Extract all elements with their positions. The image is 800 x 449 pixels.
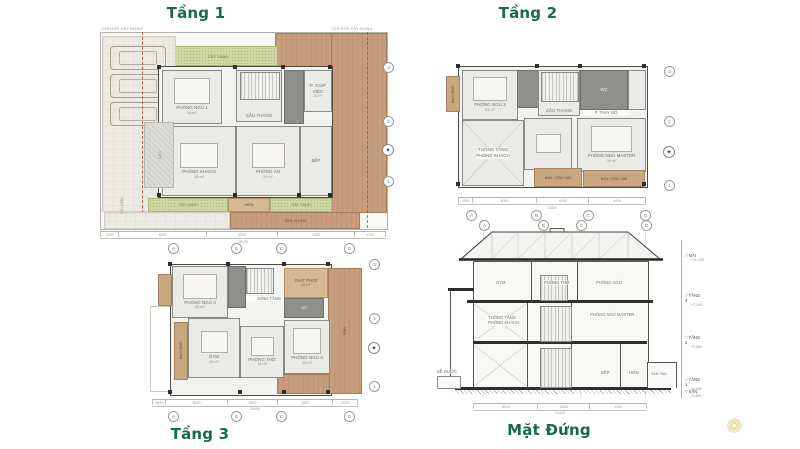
room-dining: PHÒNG ĂN 24 m² [236, 126, 300, 196]
garden-deck: SÂN VƯỜN [230, 212, 360, 229]
dimension-row: 5000 4000 4400 [473, 403, 647, 409]
terrace-right: SÂN [328, 268, 362, 394]
column [535, 64, 539, 68]
room-bath2 [517, 70, 539, 108]
grid-bubble-1: 1 [383, 176, 394, 187]
grid-bubble-2: 2 [369, 313, 380, 324]
grid-bubble-a: A [466, 210, 477, 221]
level-marker: TẦNG 3 +7.200 [685, 293, 702, 308]
room-sitting [524, 118, 572, 170]
level-marker: SÂN -0.450 [685, 389, 701, 399]
room-master: PHÒNG NGỦ MASTER 36 m² [577, 118, 646, 172]
void-cross [474, 345, 526, 386]
wall-line [527, 344, 528, 388]
section-porch-label: HIÊN [628, 370, 640, 375]
floor1-title: Tầng 1 [130, 4, 262, 22]
room-laundry: GIẶT PHƠI 12 m² [284, 268, 328, 298]
north-arrow-icon: ✦ [382, 144, 394, 156]
grid-bubble-3: 3 [664, 66, 675, 77]
grid-bubble-c: C [276, 411, 287, 422]
wall-line [577, 261, 578, 301]
roof-section [458, 228, 664, 262]
brand-flower-logo: ❁ [726, 417, 743, 437]
level-marker: TẦNG 2 +3.600 [685, 335, 702, 350]
column [642, 64, 646, 68]
dimension-row: 1000 5000 4000 4400 1700 [100, 231, 386, 237]
column [328, 65, 332, 69]
grid-bubble-c: C [583, 210, 594, 221]
planting-strip-br: CÂY XANH [270, 198, 332, 212]
water-tank-label: BỂ NƯỚC [436, 369, 458, 374]
court-area: SÂN [144, 122, 174, 188]
dimension-row: 1000 5000 4000 4400 2000 [152, 399, 358, 405]
column [642, 182, 646, 186]
north-arrow-icon: ✦ [368, 342, 380, 354]
room-gym: GYM 25 m² [188, 318, 240, 378]
floor2-title: Tầng 2 [462, 4, 594, 22]
water-tank [437, 376, 461, 389]
grid-bubble-c: C [276, 243, 287, 254]
column [226, 262, 230, 266]
boundary-label-right: CHỈ GIỚI XÂY DỰNG [332, 27, 373, 31]
column [328, 193, 332, 197]
room-worship: PHÒNG THỜ 16 m² [240, 326, 284, 378]
drawing-sheet: { "titles": { "floor1": "Tầng 1", "floor… [0, 0, 800, 449]
balcony-1: BAN CÔNG MÁI [534, 168, 582, 187]
planting-strip-bl: CÂY XANH [148, 198, 228, 212]
ramp-label: LỐI LÊN [120, 198, 124, 214]
grid-bubble-b: B [531, 210, 542, 221]
wall-line [531, 261, 532, 301]
dimension-total: 13400 [473, 410, 647, 416]
section-master-label: PHÒNG NGỦ MASTER [589, 312, 635, 317]
room-closet [628, 70, 646, 110]
section-backyard-label: SÂN SAU [650, 372, 668, 376]
column [238, 390, 242, 394]
north-arrow-icon: ✦ [663, 146, 675, 158]
grid-bubble-1: 1 [369, 381, 380, 392]
grid-bubble-2: 2 [383, 116, 394, 127]
balcony-top-left [158, 274, 172, 306]
room-bedroom1: PHÒNG NGỦ 1 24 m² [162, 70, 222, 124]
room-wc1 [284, 70, 304, 124]
column [326, 262, 330, 266]
boundary-label-left: CHỈ GIỚI XÂY DỰNG [102, 27, 143, 31]
section-bedroom-label: PHÒNG NGỦ [595, 280, 623, 285]
room-kitchen: BẾP [300, 126, 332, 196]
balcony-left: BAN CÔNG [174, 322, 188, 380]
section-worship-label: PHÒNG THỜ [543, 280, 571, 285]
section-gym-label: GYM [495, 280, 507, 285]
column [578, 64, 582, 68]
grid-bubble-d: D [344, 243, 355, 254]
column [233, 65, 237, 69]
column [168, 262, 172, 266]
dimension-total: 16400 [152, 406, 358, 412]
room-bedroom2: PHÒNG NGỦ 2 24 m² [462, 70, 518, 120]
wall-line [620, 344, 621, 388]
balcony-left: BAN CÔNG [446, 76, 460, 112]
column [168, 390, 172, 394]
column [456, 182, 460, 186]
dimension-row: 1000 5000 4000 4400 [458, 197, 646, 203]
floor3-title: Tầng 3 [134, 425, 266, 443]
column [456, 64, 460, 68]
grid-bubble-d: D [344, 411, 355, 422]
ground-hatch [455, 390, 671, 394]
column [281, 65, 285, 69]
dimension-total: 14400 [458, 204, 646, 210]
porch: HIÊN [228, 198, 270, 212]
column [282, 262, 286, 266]
wood-deck-right [331, 33, 387, 213]
grid-bubble-a: A [168, 411, 179, 422]
column [297, 193, 301, 197]
section-void-label: THÔNG TẦNG PHÒNG KHÁCH [487, 315, 517, 326]
planting-strip-top: CÂY XANH [158, 46, 278, 66]
room-maid: P. GIÚP VIỆC 8 m² [304, 70, 332, 112]
column [157, 65, 161, 69]
grid-bubble-3: 3 [369, 259, 380, 270]
stair-treads [541, 72, 579, 102]
stair-treads [246, 268, 274, 294]
level-marker: MÁI +11.100 [685, 253, 704, 263]
section-stairs [540, 348, 572, 388]
section-stairs [540, 275, 568, 301]
stair-treads [240, 72, 280, 100]
room-void: THÔNG TẦNG PHÒNG KHÁCH [462, 120, 524, 186]
column [326, 390, 330, 394]
level-dim-line [681, 240, 682, 398]
grid-bubble-1: 1 [664, 180, 675, 191]
wall-line [527, 303, 528, 342]
grid-bubble-b: B [231, 411, 242, 422]
section-stairs [540, 306, 572, 342]
column [282, 390, 286, 394]
stone-path [104, 212, 230, 229]
room-bedroom3: PHÒNG NGỦ 3 25 m² [172, 266, 228, 318]
column [233, 193, 237, 197]
room-wc4: WC [284, 298, 324, 318]
setback-line-left [142, 32, 143, 228]
grid-bubble-2: 2 [664, 116, 675, 127]
elevation-title: Mặt Đứng [483, 421, 615, 439]
room-bedroom4: PHÒNG NGỦ 4 26 m² [284, 320, 330, 374]
balcony-2: BAN CÔNG MÁI [583, 170, 645, 187]
room-wc3 [228, 266, 246, 308]
dressing-label: P. THAY ĐỒ [583, 110, 629, 115]
grid-bubble-b: B [231, 243, 242, 254]
porch-roof [448, 288, 474, 291]
room-wc2: WC [580, 70, 628, 110]
setback-line-right [367, 32, 368, 228]
dimension-total: 16100 [100, 238, 386, 244]
column [157, 193, 161, 197]
grid-bubble-3: 3 [383, 62, 394, 73]
grid-bubble-a: A [168, 243, 179, 254]
section-kitchen-label: BẾP [600, 370, 610, 375]
